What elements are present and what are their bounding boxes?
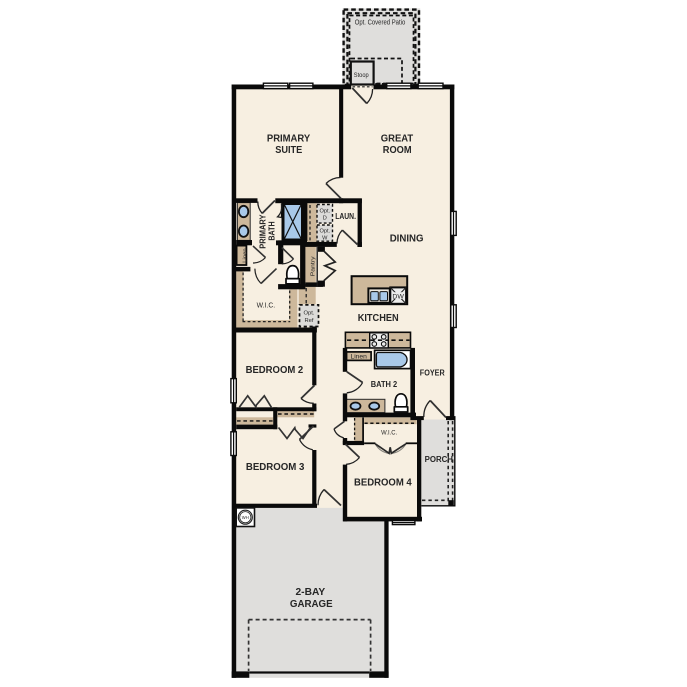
svg-text:Linen: Linen [351, 354, 368, 361]
svg-text:Pantry: Pantry [311, 256, 317, 276]
svg-text:Opt.: Opt. [320, 229, 331, 235]
svg-text:BEDROOM 3: BEDROOM 3 [246, 462, 305, 473]
svg-text:Ref: Ref [304, 318, 313, 324]
svg-text:KITCHEN: KITCHEN [358, 313, 399, 324]
svg-text:PORCH: PORCH [425, 454, 453, 464]
svg-text:Stoop: Stoop [354, 72, 369, 79]
svg-text:LAUN.: LAUN. [335, 211, 356, 221]
svg-text:D: D [323, 216, 327, 222]
svg-text:Opt.: Opt. [320, 209, 331, 215]
svg-text:ROOM: ROOM [383, 145, 412, 156]
svg-text:BATH 2: BATH 2 [371, 379, 398, 389]
svg-text:DW: DW [392, 293, 405, 300]
svg-text:GREAT: GREAT [381, 133, 414, 144]
svg-text:GARAGE: GARAGE [290, 599, 333, 610]
svg-text:SUITE: SUITE [275, 145, 302, 156]
svg-text:W.I.C.: W.I.C. [257, 302, 276, 309]
svg-text:BATH: BATH [266, 221, 276, 240]
svg-text:FOYER: FOYER [420, 368, 446, 378]
svg-text:BEDROOM 2: BEDROOM 2 [246, 365, 304, 376]
svg-text:PRIMARY: PRIMARY [267, 134, 310, 145]
svg-text:W.I.C.: W.I.C. [381, 429, 397, 436]
svg-text:Opt. Covered Patio: Opt. Covered Patio [355, 18, 406, 27]
svg-text:BEDROOM 4: BEDROOM 4 [354, 477, 412, 488]
svg-text:WH: WH [242, 515, 249, 520]
svg-text:Opt.: Opt. [304, 311, 315, 317]
svg-text:W: W [322, 236, 328, 242]
svg-text:DINING: DINING [390, 233, 424, 244]
svg-text:2-BAY: 2-BAY [296, 587, 326, 598]
svg-text:Linen: Linen [242, 248, 248, 262]
